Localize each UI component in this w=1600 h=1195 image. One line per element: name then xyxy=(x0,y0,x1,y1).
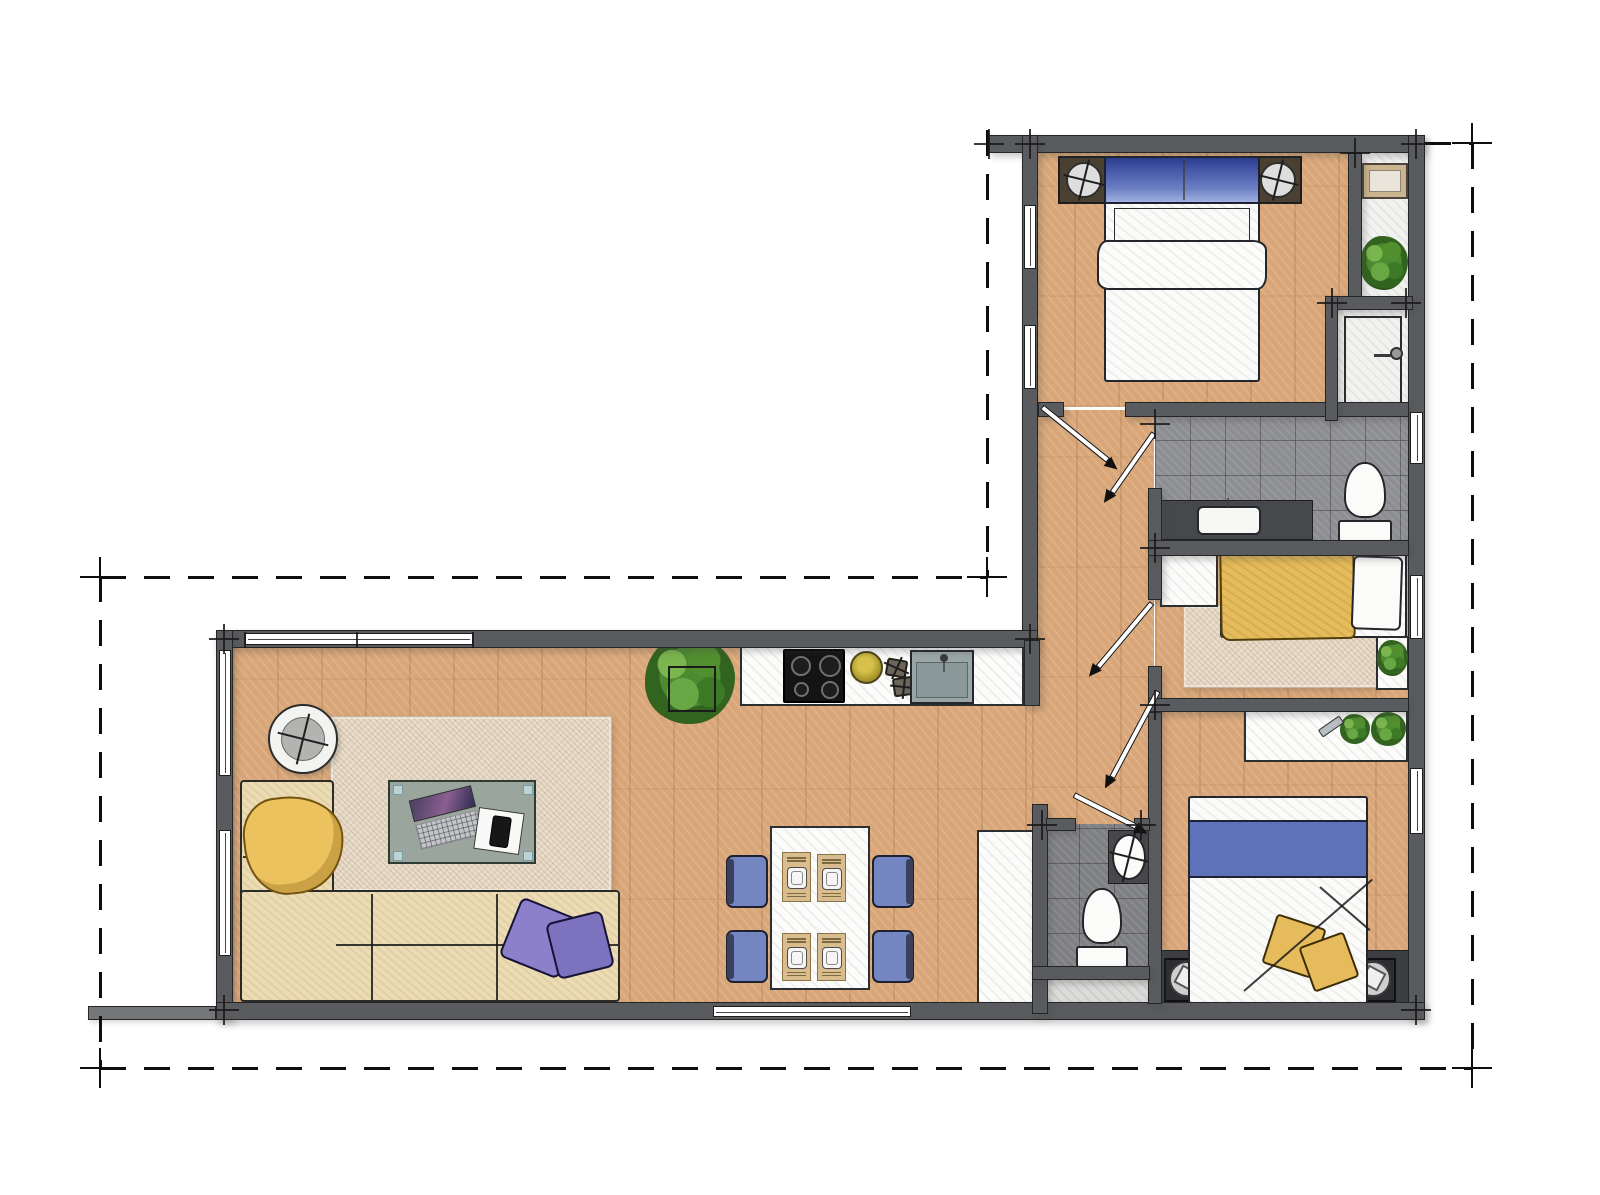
chair-back xyxy=(727,859,734,904)
wall xyxy=(1348,153,1362,303)
tick-v xyxy=(1029,129,1031,159)
floor-plan xyxy=(0,0,1600,1195)
tick-v xyxy=(223,624,225,654)
boundary-line xyxy=(986,130,989,577)
lamp-circle xyxy=(1066,162,1102,198)
table-corner xyxy=(523,851,533,861)
folded-blanket xyxy=(1190,820,1366,878)
pillows xyxy=(1104,156,1260,204)
dining-chair xyxy=(726,930,768,983)
corner-tick xyxy=(974,129,1004,159)
corner-tick xyxy=(1027,810,1057,840)
coffee-table xyxy=(388,780,536,864)
plate xyxy=(822,947,842,969)
planter-box xyxy=(668,666,716,712)
corner-tick xyxy=(1340,138,1370,168)
wall xyxy=(1148,698,1409,712)
faucet-stem xyxy=(943,660,945,672)
corner-tick xyxy=(1317,288,1347,318)
wall-mirror xyxy=(1362,163,1408,199)
corner-tick xyxy=(1015,624,1045,654)
window xyxy=(219,830,231,956)
datum-mark xyxy=(80,557,120,597)
window xyxy=(245,633,473,645)
bowl xyxy=(1082,888,1122,944)
potted-plant xyxy=(1360,236,1408,290)
lamp-circle xyxy=(1260,162,1296,198)
bowl xyxy=(1344,462,1386,518)
phone xyxy=(489,815,512,848)
window-mullion xyxy=(244,632,246,648)
dining-chair xyxy=(726,855,768,908)
cistern xyxy=(1338,520,1392,542)
boundary-line xyxy=(99,576,102,1068)
tick-v xyxy=(223,995,225,1025)
chair-back xyxy=(906,934,913,979)
tick-v xyxy=(1331,288,1333,318)
tick-v xyxy=(1354,138,1356,168)
faucet xyxy=(1227,498,1229,507)
corner-tick xyxy=(1140,690,1170,720)
place-setting xyxy=(817,854,846,902)
window xyxy=(1410,768,1423,834)
window-mullion xyxy=(472,632,474,648)
plate xyxy=(787,947,807,969)
cistern xyxy=(1076,946,1128,968)
entry-door-window xyxy=(713,1006,911,1017)
corner-tick xyxy=(1401,995,1431,1025)
corner-tick xyxy=(1391,288,1421,318)
tick-v xyxy=(988,129,990,159)
tick-v xyxy=(1154,690,1156,720)
window-mullion xyxy=(356,632,358,648)
bathroom-toilet xyxy=(1338,462,1392,542)
tick-v xyxy=(1140,810,1142,840)
corner-tick xyxy=(1015,129,1045,159)
potted-plant xyxy=(1377,640,1408,676)
datum-mark xyxy=(1452,1048,1492,1088)
burner xyxy=(819,655,841,677)
window xyxy=(1024,325,1036,389)
bed-pillow xyxy=(1351,555,1404,631)
table-corner xyxy=(393,851,403,861)
datum-mark xyxy=(80,1048,120,1088)
chair-back xyxy=(727,934,734,979)
notepad xyxy=(473,807,524,855)
master-double-bed xyxy=(1104,156,1260,382)
cross-v xyxy=(986,557,988,597)
window xyxy=(1410,575,1423,639)
window xyxy=(1410,412,1423,464)
potted-plant xyxy=(1340,714,1370,744)
place-setting xyxy=(817,933,846,981)
wardrobe-cabinet xyxy=(977,830,1035,1004)
cooktop xyxy=(783,649,845,703)
burner xyxy=(791,656,811,676)
wc-basin xyxy=(1112,834,1146,880)
sofa-seam xyxy=(496,894,498,1000)
tick-v xyxy=(1041,810,1043,840)
basin xyxy=(1197,506,1261,535)
dining-chair xyxy=(872,855,914,908)
burner xyxy=(821,681,839,699)
corner-tick xyxy=(1140,409,1170,439)
chair-back xyxy=(906,859,913,904)
corner-tick xyxy=(209,624,239,654)
burner xyxy=(794,682,809,697)
dining-chair xyxy=(872,930,914,983)
tick-v xyxy=(1415,995,1417,1025)
boundary-line xyxy=(100,576,987,579)
cross-v xyxy=(1471,123,1473,163)
table-top xyxy=(281,717,325,761)
side-table xyxy=(268,704,338,774)
potted-plant xyxy=(1371,712,1406,746)
corner-tick xyxy=(209,995,239,1025)
fruit-bowl xyxy=(850,651,883,684)
tick-v xyxy=(1029,624,1031,654)
place-setting xyxy=(782,852,811,902)
sofa-seam xyxy=(371,894,373,1000)
corner-tick xyxy=(1126,810,1156,840)
kitchen-sink xyxy=(910,650,974,704)
wall xyxy=(1148,540,1409,556)
tick-v xyxy=(1154,533,1156,563)
terrace-wall xyxy=(88,1006,216,1020)
table-corner xyxy=(523,785,533,795)
datum-mark xyxy=(1452,123,1492,163)
boundary-line xyxy=(100,1067,1472,1070)
cross-v xyxy=(99,1048,101,1088)
boundary-line xyxy=(1471,143,1474,1068)
corner-tick xyxy=(1140,533,1170,563)
cross-v xyxy=(1471,1048,1473,1088)
shower-head xyxy=(1390,347,1403,360)
datum-mark xyxy=(967,557,1007,597)
pillow-divider xyxy=(1183,160,1185,200)
tick-v xyxy=(1405,288,1407,318)
place-setting xyxy=(782,933,811,981)
bathroom-vanity xyxy=(1160,500,1313,540)
yellow-duvet xyxy=(1219,548,1356,641)
window xyxy=(219,650,231,776)
plate xyxy=(822,868,842,890)
window xyxy=(1024,205,1036,269)
folded-blanket xyxy=(1097,240,1267,290)
basin xyxy=(916,662,968,698)
shower-tray xyxy=(1344,316,1402,412)
wc-toilet xyxy=(1076,888,1128,968)
table-corner xyxy=(393,785,403,795)
nightstand-lamp xyxy=(1058,156,1108,204)
plate xyxy=(787,867,807,889)
wall xyxy=(1148,712,1162,1004)
cross-v xyxy=(99,557,101,597)
tick-v xyxy=(1154,409,1156,439)
corner-tick xyxy=(1401,129,1431,159)
tick-v xyxy=(1415,129,1417,159)
wall xyxy=(1032,966,1150,980)
